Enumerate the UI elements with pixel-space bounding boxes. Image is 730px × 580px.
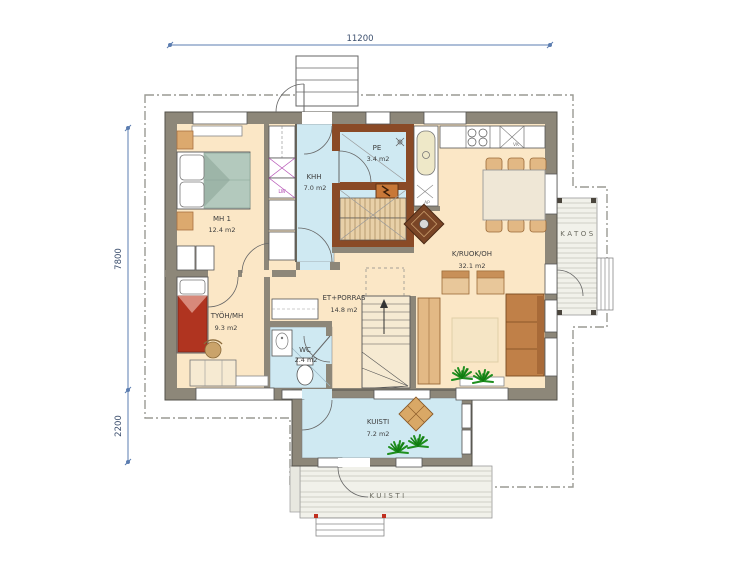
porch-side-steps	[290, 466, 300, 512]
washer-label: LW	[278, 189, 285, 195]
et-name: ET+PORRAS	[323, 294, 367, 302]
sink-unit-label: VK	[513, 142, 520, 148]
katos-terrace	[557, 198, 613, 315]
kitchen-counter	[440, 126, 545, 148]
deck-post	[557, 198, 562, 203]
mh1-door-opening	[242, 270, 272, 277]
tyoh-name: TYÖH/MH	[210, 311, 244, 320]
pillow	[180, 155, 204, 180]
khh-door-opening	[300, 262, 330, 270]
wc-name: WC	[299, 346, 311, 354]
single-bed-icon	[177, 277, 208, 353]
dining-table	[483, 170, 545, 220]
wc-area: 2.4 m2	[295, 356, 318, 364]
kroh-name: K/RUOK/OH	[452, 250, 492, 258]
katos-label: KATOS	[560, 230, 595, 238]
bottom-porch	[290, 466, 492, 536]
deck-post	[591, 310, 596, 315]
tyoh-door-opening	[208, 270, 238, 277]
dining-chair	[530, 158, 546, 171]
pe-area: 3.4 m2	[367, 155, 390, 163]
porch-label: KUISTI	[369, 492, 406, 500]
double-bed-icon	[177, 152, 250, 209]
dining-chair	[530, 219, 546, 232]
pillow	[180, 182, 204, 207]
back-door-opening	[302, 112, 332, 124]
khh-floor	[296, 124, 334, 262]
kroh-area: 32.1 m2	[458, 262, 485, 270]
porch-front-steps	[316, 518, 384, 536]
floor-plan-page: 11200 7800 2200 KATOS	[0, 0, 730, 580]
floor-plan-drawing: 11200 7800 2200 KATOS	[0, 0, 730, 580]
back-stoop-steps	[296, 56, 358, 106]
porch-corner-mark	[382, 514, 386, 518]
nightstand	[177, 212, 193, 230]
khh-area: 7.0 m2	[304, 184, 327, 192]
dining-chair	[508, 219, 524, 232]
tyoh-area: 9.3 m2	[215, 324, 238, 332]
porch-corner-mark	[314, 514, 318, 518]
dim-depth-lower-label: 2200	[114, 415, 124, 437]
dim-depth-main-label: 7800	[114, 248, 124, 270]
wardrobe	[177, 246, 195, 270]
rug	[452, 318, 498, 362]
desk-icon	[190, 360, 236, 386]
sauna-benches	[340, 198, 406, 240]
deck-post	[591, 198, 596, 203]
et-area: 14.8 m2	[330, 306, 357, 314]
dining-chair	[508, 158, 524, 171]
dining-chair	[486, 158, 502, 171]
dim-width-label: 11200	[346, 34, 373, 44]
kuisti-porch-door-opening	[338, 458, 370, 467]
sofa-icon	[506, 294, 544, 376]
pillow	[180, 280, 205, 294]
sink-icon	[272, 330, 292, 356]
kuisti-floor	[302, 398, 462, 458]
sauna-stove-icon	[376, 184, 398, 198]
water-heater-icon	[417, 131, 435, 175]
dining-chair	[486, 219, 502, 232]
armchair-icon	[442, 271, 469, 294]
mh1-name: MH 1	[213, 215, 231, 223]
nightstand	[177, 131, 193, 149]
utility-closet	[414, 126, 438, 206]
katos-door-opening	[545, 264, 557, 294]
et-kuisti-door-opening	[302, 389, 332, 399]
kuisti-name: KUISTI	[367, 418, 389, 426]
kuisti-area: 7.2 m2	[367, 430, 390, 438]
pe-name: PE	[373, 144, 382, 152]
khh-name: KHH	[306, 173, 321, 181]
deck-post	[557, 310, 562, 315]
dining-set	[483, 158, 546, 232]
mh1-area: 12.4 m2	[208, 226, 235, 234]
armchair-icon	[477, 271, 504, 294]
wardrobe	[196, 246, 214, 270]
